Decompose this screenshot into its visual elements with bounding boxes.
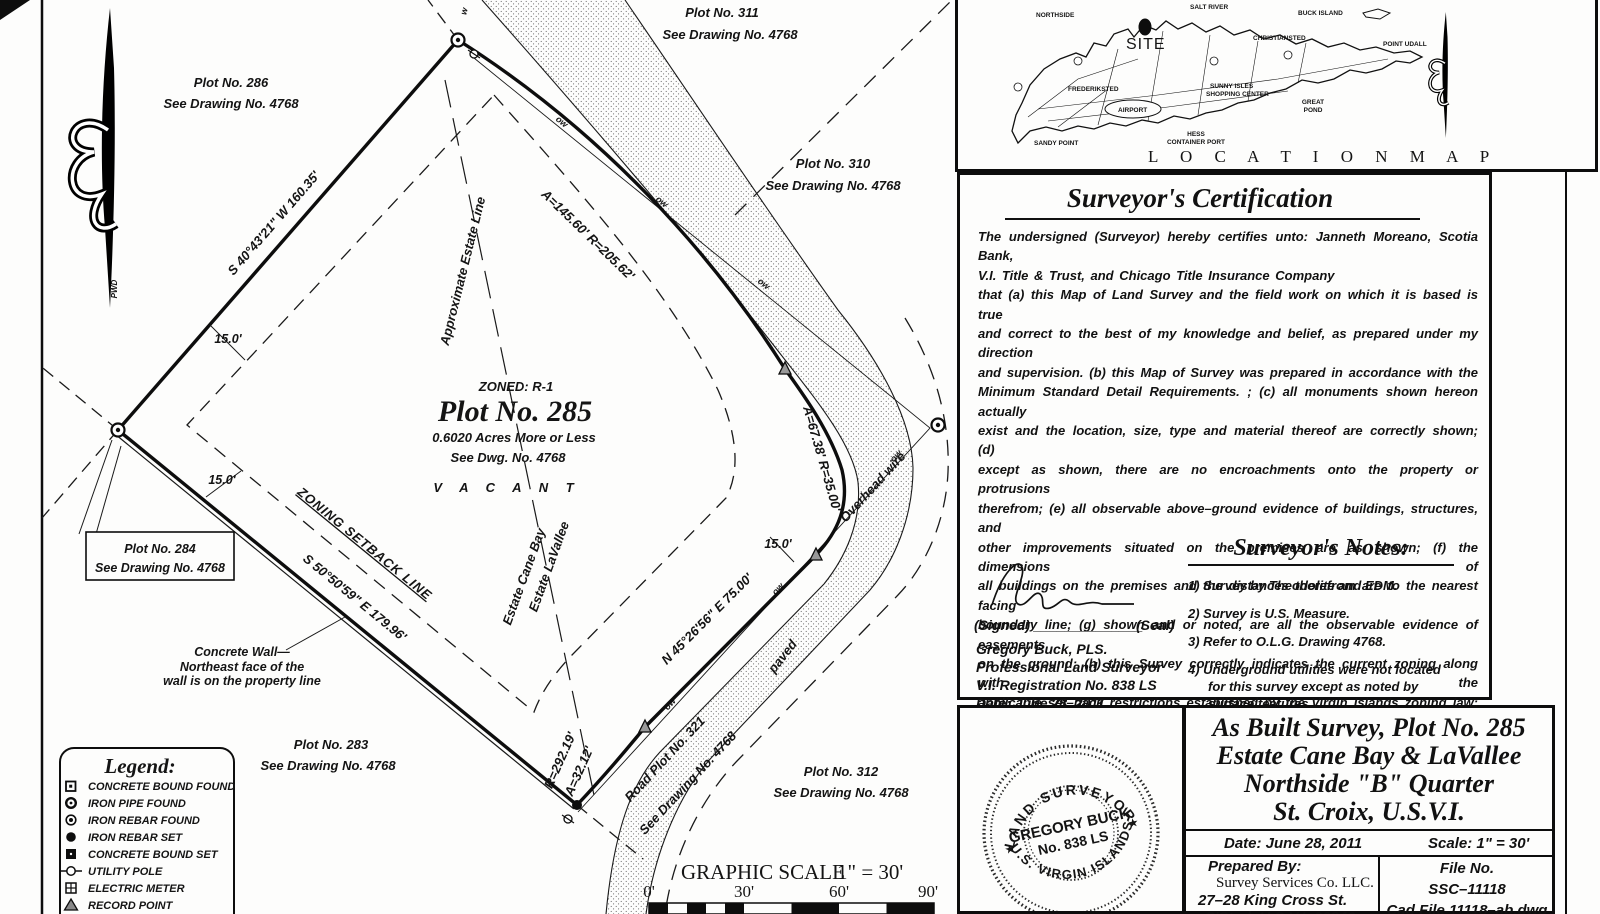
plot-283-label: Plot No. 283 [294, 737, 369, 752]
prepared-by-cell: Prepared By: Survey Services Co. LLC. 27… [1186, 858, 1378, 914]
plot-286-label: Plot No. 286 [194, 75, 269, 90]
title-block-scale: Scale: 1" = 30' [1428, 835, 1529, 852]
certification-title: Surveyor's Certification [980, 183, 1420, 214]
title-block: As Built Survey, Plot No. 285 Estate Can… [1183, 705, 1555, 914]
island-outline [1012, 21, 1422, 143]
plot-283-ref: See Drawing No. 4768 [260, 758, 396, 773]
legend-item: RECORD POINT [88, 900, 174, 912]
corner-wedge [0, 0, 30, 20]
notes-title-underline [1188, 564, 1454, 566]
pwd-label: PWD [110, 279, 119, 298]
cad-file-value: Cad File 11118–ab.dwg [1378, 902, 1556, 914]
file-no-value: SSC–11118 [1378, 881, 1556, 898]
cert-line: that (a) this Map of Land Survey and the… [978, 285, 1478, 324]
legend-item: IRON REBAR FOUND [88, 815, 200, 827]
plot-311-label: Plot No. 311 [685, 5, 758, 20]
legend-item: CONCRETE BOUND SET [88, 849, 219, 861]
certification-box: Surveyor's Certification The undersigned… [957, 172, 1492, 700]
title-block-header: As Built Survey, Plot No. 285 Estate Can… [1186, 714, 1552, 826]
company-address-2: C'Sted, U.S.V.I. 00840 [1204, 909, 1378, 914]
parcel-see-dwg: See Dwg. No. 4768 [451, 450, 567, 465]
surveyors-notes: Surveyor's Notes: 1) Survey by Theodolit… [1188, 535, 1454, 712]
graphic-scale-title: GRAPHIC SCALE [681, 860, 845, 884]
cert-line: exist and the location, size, type and m… [978, 421, 1478, 460]
zoning-label: ZONED: R-1 [478, 379, 553, 394]
survey-title-line2: Estate Cane Bay & LaVallee [1186, 742, 1552, 770]
plot-284-label: Plot No. 284 [124, 542, 196, 556]
scale-tick-90: 90' [918, 882, 938, 901]
prepared-by-label: Prepared By: [1208, 858, 1378, 875]
notes-title: Surveyor's Notes: [1188, 535, 1454, 562]
map-label-hess: HESS [1187, 131, 1205, 138]
utility-pole-icon [562, 815, 574, 823]
signature [988, 557, 1138, 619]
buck-island-outline [1363, 9, 1390, 19]
legend-item: CONCRETE BOUND FOUND [88, 781, 235, 793]
title-block-divider-2 [1186, 855, 1552, 857]
note-item: 2) Survey is U.S. Measure. [1188, 605, 1454, 622]
map-label-airport: AIRPORT [1118, 107, 1147, 114]
file-no-label: File No. [1378, 860, 1556, 877]
scale-tick-30: 30' [734, 882, 754, 901]
certification-title-underline [1005, 218, 1420, 220]
setback-dim: 15.0' [208, 473, 236, 487]
map-label-great-pond: GREAT [1302, 99, 1324, 106]
plot-310-label: Plot No. 310 [796, 156, 871, 171]
cert-line: Minimum Standard Detail Requirements. ; … [978, 382, 1478, 421]
wall-note-3: wall is on the property line [163, 674, 321, 688]
iron-pipe-found-icon [112, 424, 125, 437]
location-map-box: NORTHSIDE SALT RIVER BUCK ISLAND CHRISTI… [955, 0, 1598, 172]
iron-pipe-found-icon [452, 34, 465, 47]
legend-item: UTILITY POLE [88, 866, 163, 878]
map-label-buck-island: BUCK ISLAND [1298, 10, 1343, 17]
map-label-christiansted: CHRISTIANSTED [1253, 35, 1306, 42]
map-label-sunny-isles: SUNNY ISLES [1210, 83, 1254, 90]
legend-title: Legend: [103, 754, 175, 778]
survey-title-line3: Northside "B" Quarter [1186, 770, 1552, 798]
parcel-title: Plot No. 285 [437, 395, 592, 428]
cert-line: V.I. Title & Trust, and Chicago Title In… [978, 266, 1478, 285]
scale-tick-60: 60' [829, 882, 849, 901]
map-label-frederiksted: FREDERIKSTED [1068, 86, 1119, 93]
stamp-seal: LAND SURVEYOR U.S. VIRGIN ISLANDS GREGOR… [968, 730, 1174, 911]
file-no-cell: File No. SSC–11118 Cad File 11118–ab.dwg [1378, 860, 1556, 914]
plot-312-label: Plot No. 312 [804, 764, 879, 779]
surveyor-name: Gregory Buck, PLS. [976, 641, 1107, 657]
surveyor-stamp: LAND SURVEYOR U.S. VIRGIN ISLANDS GREGOR… [960, 708, 1182, 911]
scale-bar [649, 903, 934, 914]
map-label-northside: NORTHSIDE [1036, 12, 1075, 19]
location-map-title: L O C A T I O N M A P [1148, 147, 1498, 166]
wall-note-1: Concrete Wall— [194, 645, 290, 659]
iron-pipe-found-icon [932, 419, 945, 432]
survey-title-line1: As Built Survey, Plot No. 285 [1186, 714, 1552, 742]
survey-plat-sheet: PWD ow ow ow ow ow ow [0, 0, 1600, 914]
surveyor-role: Professional Land Surveyor [976, 659, 1162, 675]
cert-line: except as shown, there are no encroachme… [978, 460, 1478, 499]
wall-note-2: Northeast face of the [180, 660, 304, 674]
curve-main: A=145.60' R=205.62' [538, 186, 638, 284]
legend-item: IRON PIPE FOUND [88, 798, 186, 810]
note-item: 1) Survey by Theodolite and EDM. [1188, 577, 1454, 594]
legend-item: IRON REBAR SET [88, 832, 183, 844]
survey-title-line4: St. Croix, U.S.V.I. [1186, 798, 1552, 826]
setback-dim: 15.0' [214, 332, 242, 346]
iron-rebar-set-icon [66, 832, 76, 842]
company-address-1: 27–28 King Cross St. [1198, 892, 1378, 909]
iron-rebar-set-icon [572, 800, 582, 810]
sheet-edge-right [1565, 172, 1567, 914]
w-label: w [458, 6, 470, 16]
map-label-great-pond-2: POND [1304, 107, 1323, 114]
map-north-arrow-icon [1430, 12, 1448, 138]
north-arrow-icon [72, 8, 116, 308]
title-block-divider-1 [1186, 829, 1552, 831]
plot-310-ref: See Drawing No. 4768 [765, 178, 901, 193]
parcel-area: 0.6020 Acres More or Less [432, 430, 596, 445]
seal-label: (Seal) [1136, 617, 1174, 633]
map-label-container-port: CONTAINER PORT [1167, 139, 1225, 146]
parcel-status: V A C A N T [433, 480, 580, 495]
cert-line: The undersigned (Surveyor) hereby certif… [978, 227, 1478, 266]
map-label-sandy-point: SANDY POINT [1034, 140, 1078, 147]
setback-label: ZONING SETBACK LINE [294, 483, 435, 602]
estate-line-label: Approximate Estate Line [437, 195, 489, 348]
note-item: 3) Refer to O.L.G. Drawing 4768. [1188, 633, 1454, 650]
company-name: Survey Services Co. LLC. [1216, 875, 1378, 892]
setback-dim: 15.0' [764, 537, 792, 551]
cert-line: and supervision. (b) this Map of Survey … [978, 363, 1478, 382]
plot-311-ref: See Drawing No. 4768 [662, 27, 798, 42]
plat-drawing: PWD ow ow ow ow ow ow [0, 0, 952, 914]
plot-284-ref: See Drawing No. 4768 [95, 561, 225, 575]
map-label-salt-river: SALT RIVER [1190, 4, 1228, 11]
bearing-nw: S 40°43'21" W 160.35' [224, 167, 323, 277]
plot-286-ref: See Drawing No. 4768 [163, 96, 299, 111]
graphic-scale-ratio: 1" = 30' [837, 860, 903, 884]
signed-label: (Signed) ______________ [974, 617, 1143, 633]
concrete-bound-set-icon [66, 849, 76, 859]
cert-line: and correct to the best of my knowledge … [978, 324, 1478, 363]
title-block-date: Date: June 28, 2011 [1224, 835, 1362, 852]
record-point-icon [639, 362, 822, 732]
map-label-point-udall: POINT UDALL [1383, 41, 1427, 48]
location-map: NORTHSIDE SALT RIVER BUCK ISLAND CHRISTI… [958, 0, 1595, 169]
bearing-ne: N 45°26'56" E 75.00' [658, 570, 756, 668]
site-dot [1139, 19, 1152, 36]
surveyor-registration: V.I. Registration No. 838 LS [976, 677, 1157, 693]
map-site-label: SITE [1126, 36, 1166, 53]
plot-312-ref: See Drawing No. 4768 [773, 785, 909, 800]
scale-tick-0: 0' [643, 882, 655, 901]
map-label-shopping-center: SHOPPING CENTER [1206, 91, 1269, 98]
legend-item: ELECTRIC METER [88, 883, 185, 895]
cert-line: therefrom; (e) all observable above–grou… [978, 499, 1478, 538]
stamp-box: LAND SURVEYOR U.S. VIRGIN ISLANDS GREGOR… [957, 705, 1185, 914]
